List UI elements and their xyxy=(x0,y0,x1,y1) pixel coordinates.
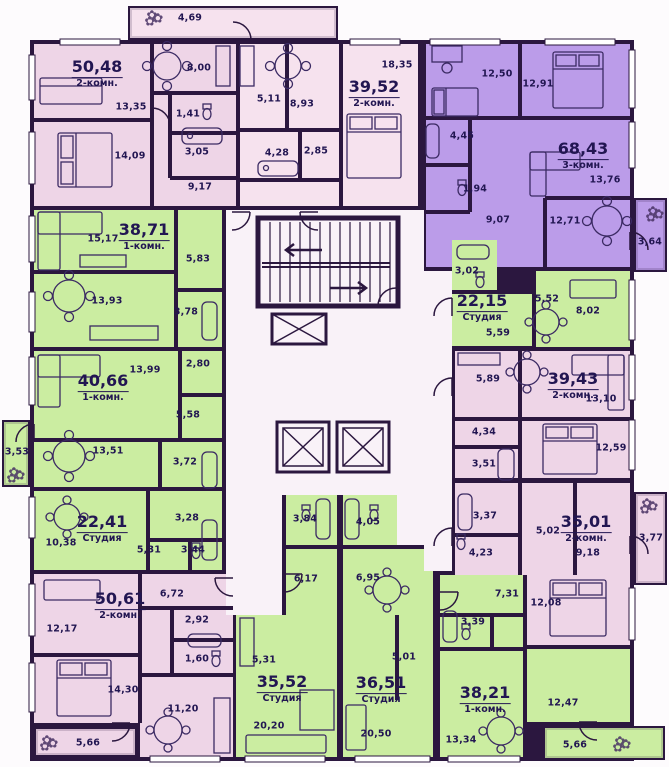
room-area-label: 1,41 xyxy=(176,109,200,120)
apartment-area: 38,71 xyxy=(119,222,170,241)
apartment-type: 1-комн. xyxy=(460,705,511,715)
balcony-area-label: 5,66 xyxy=(76,738,100,749)
plant-icon: ✿ xyxy=(615,735,626,750)
apartment-type: Студия xyxy=(77,534,128,544)
room-area-label: 12,50 xyxy=(481,69,512,80)
room-area-label: 5,02 xyxy=(536,526,560,537)
apartment-area: 40,66 xyxy=(78,373,129,392)
apartment-region-38-21[interactable] xyxy=(440,575,523,757)
apartment-area: 22,41 xyxy=(77,514,128,533)
corridor-core xyxy=(226,210,424,495)
apartment-type: 2-комн. xyxy=(561,534,612,544)
room-area-label: 7,31 xyxy=(495,589,519,600)
room-area-label: 9,17 xyxy=(188,182,212,193)
room-area-label: 5,59 xyxy=(486,328,510,339)
room-area-label: 8,00 xyxy=(187,63,211,74)
room-area-label: 5,31 xyxy=(252,655,276,666)
room-area-label: 4,28 xyxy=(265,148,289,159)
apartment-area: 36,51 xyxy=(356,675,407,694)
room-area-label: 20,50 xyxy=(360,729,391,740)
room-area-label: 4,45 xyxy=(450,131,474,142)
room-area-label: 14,30 xyxy=(107,685,138,696)
room-area-label: 5,89 xyxy=(476,374,500,385)
apartment-area: 35,52 xyxy=(257,674,308,693)
corridor-mid xyxy=(397,495,424,545)
plant-icon: ✿ xyxy=(147,9,158,24)
room-area-label: 12,08 xyxy=(530,598,561,609)
room-area-label: 18,35 xyxy=(381,60,412,71)
room-area-label: 8,93 xyxy=(290,99,314,110)
corridor-left xyxy=(226,495,282,615)
apartment-title-50-61: 50,612-комн. xyxy=(95,591,146,621)
apartment-title-68-43: 68,433-комн. xyxy=(558,141,609,171)
balcony-5-66-right xyxy=(543,726,665,760)
balcony-area-label: 3,64 xyxy=(638,237,662,248)
apartment-title-36-51: 36,51Студия xyxy=(356,675,407,705)
room-area-label: 12,91 xyxy=(522,79,553,90)
plant-icon: ✿ xyxy=(642,497,653,512)
balcony-4-69 xyxy=(128,6,338,40)
apartment-area: 38,21 xyxy=(460,685,511,704)
apartment-title-40-66: 40,661-комн. xyxy=(78,373,129,403)
plant-icon: ✿ xyxy=(9,466,20,481)
balcony-area-label: 5,66 xyxy=(563,740,587,751)
balcony-area-label: 3,53 xyxy=(5,447,29,458)
room-area-label: 2,85 xyxy=(304,146,328,157)
room-area-label: 12,71 xyxy=(549,216,580,227)
plant-icon: ✿ xyxy=(648,205,659,220)
room-area-label: 13,34 xyxy=(445,735,476,746)
room-area-label: 13,35 xyxy=(115,102,146,113)
apartment-type: 2-комн. xyxy=(95,611,146,621)
apartment-area: 68,43 xyxy=(558,141,609,160)
room-area-label: 2,80 xyxy=(186,359,210,370)
room-area-label: 5,11 xyxy=(257,94,281,105)
apartment-title-50-48: 50,482-комн. xyxy=(72,59,123,89)
corridor-right xyxy=(424,271,452,571)
apartment-type: Студия xyxy=(457,313,508,323)
apartment-title-38-21: 38,211-комн. xyxy=(460,685,511,715)
room-area-label: 13,76 xyxy=(589,175,620,186)
room-area-label: 13,10 xyxy=(585,394,616,405)
apartment-region-38-21-living[interactable] xyxy=(527,649,630,722)
room-area-label: 4,05 xyxy=(356,517,380,528)
room-area-label: 5,83 xyxy=(186,254,210,265)
room-area-label: 5,31 xyxy=(137,545,161,556)
apartment-region-22-41[interactable] xyxy=(34,491,222,570)
apartment-type: 1-комн. xyxy=(78,393,129,403)
room-area-label: 2,92 xyxy=(185,615,209,626)
room-area-label: 4,34 xyxy=(472,427,496,438)
apartment-type: 2-комн. xyxy=(72,79,123,89)
room-area-label: 3,05 xyxy=(185,147,209,158)
floor-plan: 50,482-комн. 39,522-комн. 68,433-комн. 3… xyxy=(0,0,669,767)
room-area-label: 11,20 xyxy=(167,704,198,715)
apartment-type: 2-комн. xyxy=(349,99,400,109)
room-area-label: 15,17 xyxy=(87,234,118,245)
room-area-label: 5,01 xyxy=(392,652,416,663)
room-area-label: 3,39 xyxy=(461,617,485,628)
room-area-label: 5,52 xyxy=(535,294,559,305)
room-area-label: 13,51 xyxy=(92,446,123,457)
apartment-area: 50,61 xyxy=(95,591,146,610)
room-area-label: 12,59 xyxy=(595,443,626,454)
room-area-label: 4,23 xyxy=(469,548,493,559)
room-area-label: 3,28 xyxy=(175,513,199,524)
balcony-area-label: 3,77 xyxy=(639,533,663,544)
apartment-area: 39,43 xyxy=(548,371,599,390)
room-area-label: 6,72 xyxy=(160,589,184,600)
apartment-title-39-52: 39,522-комн. xyxy=(349,79,400,109)
room-area-label: 9,07 xyxy=(486,215,510,226)
room-area-label: 5,58 xyxy=(176,410,200,421)
room-area-label: 6,95 xyxy=(356,573,380,584)
balcony-area-label: 4,69 xyxy=(178,13,202,24)
room-area-label: 3,37 xyxy=(473,511,497,522)
room-area-label: 1,94 xyxy=(463,184,487,195)
apartment-title-22-15: 22,15Студия xyxy=(457,293,508,323)
room-area-label: 8,02 xyxy=(576,306,600,317)
room-area-label: 3,72 xyxy=(173,457,197,468)
room-area-label: 3,44 xyxy=(181,545,205,556)
room-area-label: 14,09 xyxy=(114,151,145,162)
room-area-label: 3,78 xyxy=(174,307,198,318)
apartment-title-38-71: 38,711-комн. xyxy=(119,222,170,252)
apartment-area: 22,15 xyxy=(457,293,508,312)
apartment-area: 50,48 xyxy=(72,59,123,78)
apartment-area: 39,52 xyxy=(349,79,400,98)
room-area-label: 12,47 xyxy=(547,698,578,709)
room-area-label: 20,20 xyxy=(253,721,284,732)
room-area-label: 12,17 xyxy=(46,624,77,635)
room-area-label: 3,02 xyxy=(455,266,479,277)
room-area-label: 6,17 xyxy=(294,574,318,585)
apartment-title-22-41: 22,41Студия xyxy=(77,514,128,544)
room-area-label: 13,99 xyxy=(129,365,160,376)
room-area-label: 1,60 xyxy=(185,654,209,665)
apartment-region-50-61-kitchen[interactable] xyxy=(140,723,233,757)
apartment-type: 1-комн. xyxy=(119,242,170,252)
room-area-label: 10,38 xyxy=(45,538,76,549)
apartment-title-35-52: 35,52Студия xyxy=(257,674,308,704)
apartment-area: 35,01 xyxy=(561,514,612,533)
apartment-title-35-01: 35,012-комн. xyxy=(561,514,612,544)
apartment-type: 3-комн. xyxy=(558,161,609,171)
room-area-label: 9,18 xyxy=(576,548,600,559)
room-area-label: 13,93 xyxy=(91,296,122,307)
apartment-type: Студия xyxy=(257,694,308,704)
plant-icon: ✿ xyxy=(42,734,53,749)
room-area-label: 3,51 xyxy=(472,459,496,470)
room-area-label: 3,84 xyxy=(293,514,317,525)
apartment-type: Студия xyxy=(356,695,407,705)
